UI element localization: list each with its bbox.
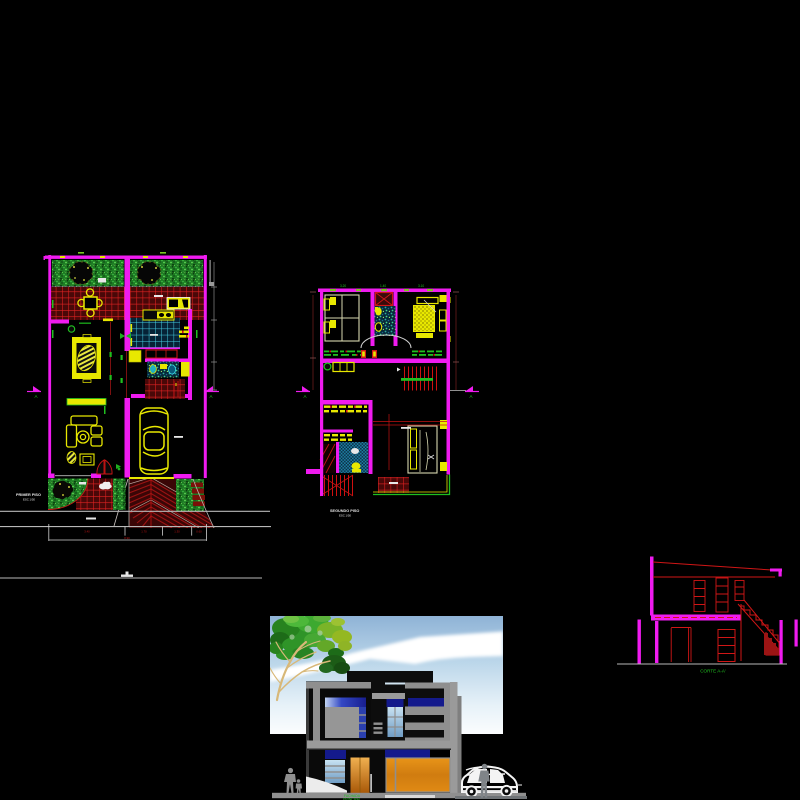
svg-text:SEGUNDO PISO: SEGUNDO PISO [330, 509, 359, 513]
svg-text:3.40: 3.40 [84, 530, 90, 534]
svg-text:3.20: 3.20 [340, 284, 346, 288]
svg-text:8.90: 8.90 [124, 536, 130, 540]
svg-text:ESC 1/50: ESC 1/50 [23, 498, 35, 502]
svg-text:1.70: 1.70 [141, 530, 147, 534]
svg-text:A: A [209, 394, 212, 399]
svg-text:CORTE A-A': CORTE A-A' [700, 669, 726, 674]
svg-text:PRIMER PISO: PRIMER PISO [16, 493, 41, 497]
svg-text:A: A [34, 394, 37, 399]
svg-text:A: A [469, 394, 472, 399]
svg-text:3.10: 3.10 [418, 284, 424, 288]
svg-text:1.30: 1.30 [174, 530, 180, 534]
svg-text:ESC 1/50: ESC 1/50 [339, 514, 351, 518]
svg-text:A: A [303, 394, 306, 399]
svg-text:0.60: 0.60 [196, 530, 202, 534]
svg-text:1.40: 1.40 [380, 284, 386, 288]
